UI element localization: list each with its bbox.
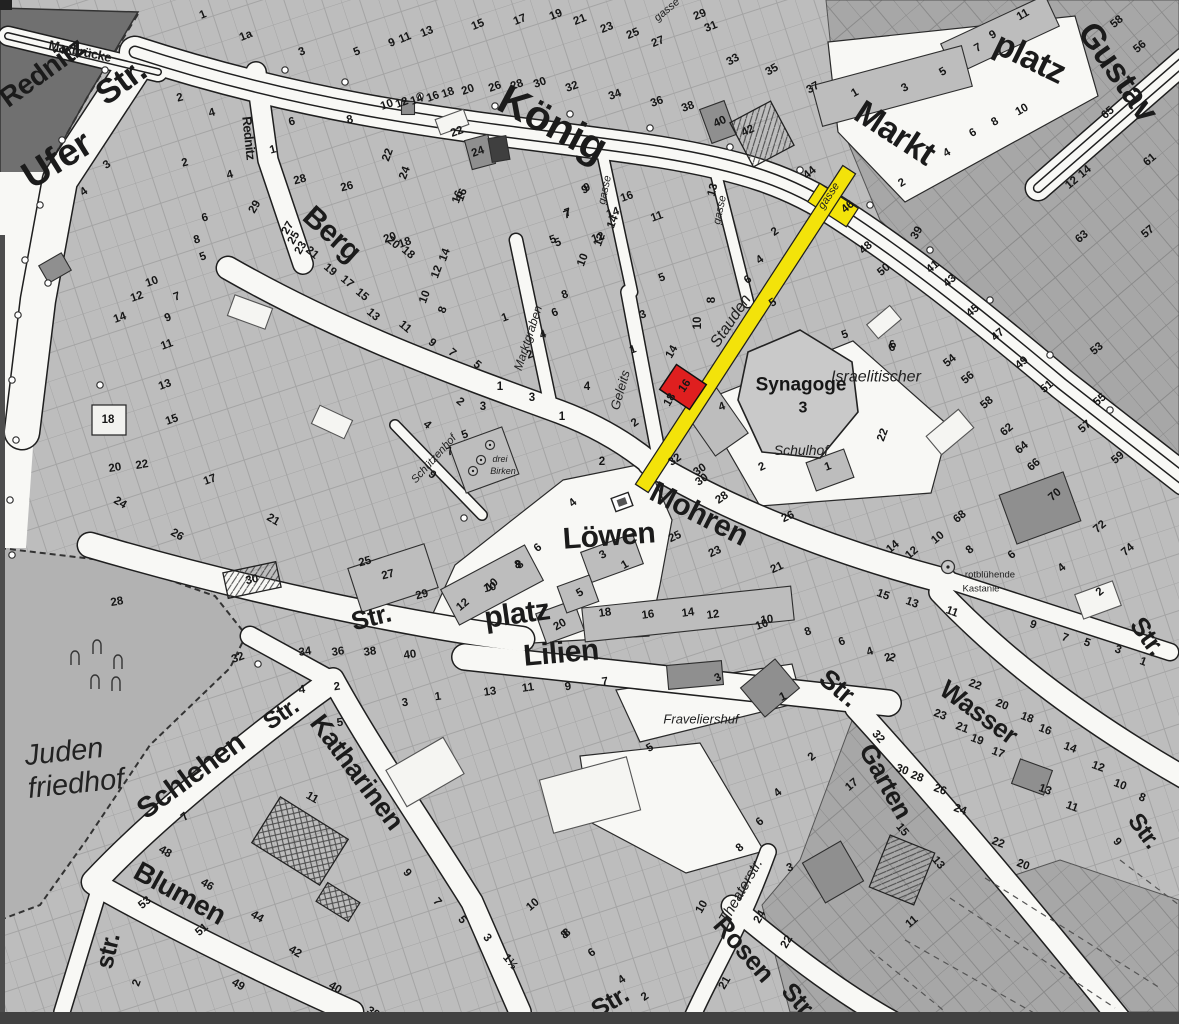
- building-footprint: [488, 136, 510, 163]
- house-number: 18: [102, 414, 115, 426]
- boundary-stone-dot: [1047, 352, 1053, 358]
- tree-center-dot: [489, 444, 491, 446]
- boundary-stone-dot: [45, 280, 51, 286]
- scan-edge-left: [0, 235, 5, 1024]
- scan-edge-bottom: [0, 1012, 1179, 1024]
- boundary-stone-dot: [461, 515, 467, 521]
- boundary-stone-dot: [97, 382, 103, 388]
- boundary-stone-dot: [255, 661, 261, 667]
- house-number: 18: [598, 606, 613, 620]
- house-number: 16: [641, 608, 655, 622]
- house-number: 4: [584, 381, 591, 393]
- house-number: 3: [480, 401, 486, 413]
- map-canvas: KönigMarktplatzGustavUferStr.RednitzMaxb…: [0, 0, 1179, 1024]
- boundary-stone-dot: [15, 312, 21, 318]
- street-label: Löwen: [562, 516, 657, 555]
- boundary-stone-dot: [7, 497, 13, 503]
- house-number: 22: [135, 458, 150, 472]
- house-number: 14: [681, 606, 696, 620]
- house-number: 40: [403, 648, 417, 662]
- boundary-stone-dot: [9, 377, 15, 383]
- place-label: 3: [799, 400, 808, 417]
- boundary-stone-dot: [647, 125, 653, 131]
- house-number: 13: [483, 685, 497, 699]
- tree-center-dot: [946, 565, 949, 568]
- boundary-stone-dot: [727, 144, 733, 150]
- tree-center-dot: [472, 470, 474, 472]
- boundary-stone-dot: [37, 202, 43, 208]
- tree-center-dot: [480, 459, 482, 461]
- annotation-label: Kastanie: [963, 584, 1000, 595]
- scan-corner-mark: [0, 0, 12, 10]
- place-label: Synagoge: [756, 375, 847, 396]
- boundary-stone-dot: [22, 257, 28, 263]
- lane-label: drei: [492, 454, 508, 464]
- lane-label: Schulhof: [774, 442, 831, 458]
- house-number: 10: [692, 317, 704, 330]
- boundary-stone-dot: [282, 67, 288, 73]
- boundary-stone-dot: [927, 247, 933, 253]
- boundary-stone-dot: [9, 552, 15, 558]
- street-label: Lilien: [522, 633, 600, 672]
- house-number: 36: [331, 645, 345, 659]
- boundary-stone-dot: [1107, 407, 1113, 413]
- house-number: 3: [529, 392, 535, 404]
- house-number: 2: [599, 456, 605, 468]
- house-number: 38: [363, 645, 378, 659]
- lane-label: Fraveliershuf: [663, 712, 740, 727]
- annotation-label: rotblühende: [965, 570, 1015, 581]
- city-map: KönigMarktplatzGustavUferStr.RednitzMaxb…: [0, 0, 1179, 1024]
- lane-label: Birken: [490, 466, 516, 476]
- boundary-stone-dot: [13, 437, 19, 443]
- house-number: 1: [559, 411, 566, 423]
- boundary-stone-dot: [342, 79, 348, 85]
- house-number: 12: [706, 608, 720, 622]
- house-number: 20: [108, 461, 123, 475]
- boundary-stone-dot: [867, 202, 873, 208]
- house-number: 34: [298, 645, 313, 659]
- house-number: 11: [521, 681, 535, 695]
- boundary-stone-dot: [987, 297, 993, 303]
- house-number: 1: [497, 381, 504, 393]
- house-number: 8: [706, 296, 718, 303]
